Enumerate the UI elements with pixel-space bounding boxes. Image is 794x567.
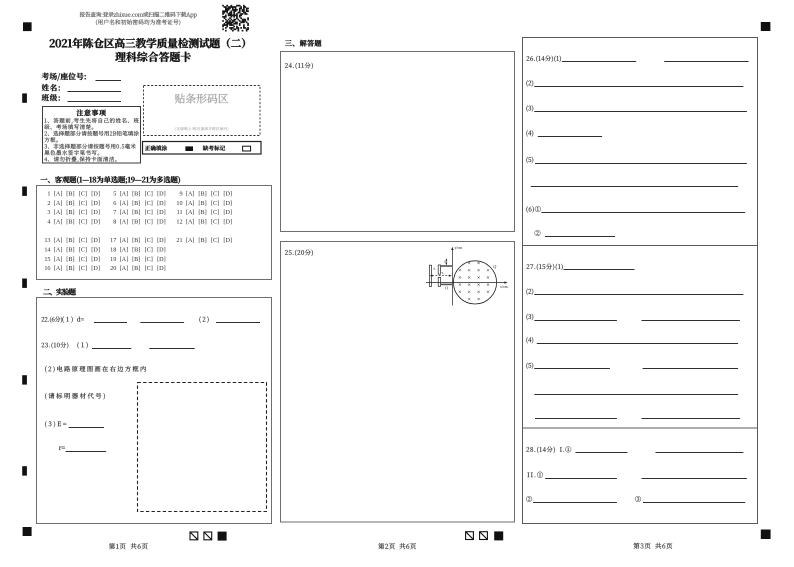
svg-text:[B]: [B] — [66, 191, 74, 198]
svg-text:[C]: [C] — [145, 256, 153, 263]
svg-text:[C]: [C] — [211, 191, 219, 198]
svg-text:d₂: d₂ — [444, 260, 447, 264]
svg-text:[B]: [B] — [66, 218, 74, 225]
svg-text:[D]: [D] — [223, 237, 232, 244]
svg-text:[C]: [C] — [145, 247, 153, 254]
svg-text:[D]: [D] — [157, 237, 166, 244]
svg-text:[D]: [D] — [223, 218, 232, 225]
svg-text:3: 3 — [47, 209, 50, 216]
svg-text:[B]: [B] — [132, 209, 140, 216]
svg-text:[A]: [A] — [186, 209, 195, 216]
svg-text:[D]: [D] — [91, 191, 100, 198]
svg-text:[B]: [B] — [132, 218, 140, 225]
svg-text:[D]: [D] — [91, 256, 100, 263]
svg-text:[A]: [A] — [54, 237, 63, 244]
svg-text:[A]: [A] — [54, 209, 63, 216]
svg-text:[C]: [C] — [79, 191, 87, 198]
svg-text:15: 15 — [44, 256, 50, 263]
svg-text:Q: Q — [493, 264, 496, 269]
svg-text:[B]: [B] — [198, 200, 206, 207]
svg-text:[B]: [B] — [66, 265, 74, 272]
svg-text:[B]: [B] — [132, 200, 140, 207]
svg-text:[D]: [D] — [157, 256, 166, 263]
svg-text:[A]: [A] — [54, 200, 63, 207]
svg-text:17: 17 — [110, 237, 116, 244]
svg-text:[B]: [B] — [198, 191, 206, 198]
svg-text:[B]: [B] — [66, 209, 74, 216]
svg-text:[C]: [C] — [79, 218, 87, 225]
svg-text:[D]: [D] — [91, 200, 100, 207]
svg-text:[C]: [C] — [145, 209, 153, 216]
svg-text:10: 10 — [176, 200, 182, 207]
svg-text:16: 16 — [44, 265, 50, 272]
svg-text:[C]: [C] — [211, 237, 219, 244]
svg-text:[B]: [B] — [198, 209, 206, 216]
svg-text:[D]: [D] — [223, 191, 232, 198]
svg-text:[B]: [B] — [198, 218, 206, 225]
svg-text:[C]: [C] — [79, 200, 87, 207]
svg-text:[A]: [A] — [186, 237, 195, 244]
svg-text:[D]: [D] — [223, 200, 232, 207]
svg-text:[C]: [C] — [79, 256, 87, 263]
svg-text:[D]: [D] — [157, 209, 166, 216]
svg-text:[C]: [C] — [145, 191, 153, 198]
svg-text:7: 7 — [113, 209, 116, 216]
svg-text:5: 5 — [113, 191, 116, 198]
svg-text:[A]: [A] — [120, 218, 129, 225]
svg-text:[D]: [D] — [91, 218, 100, 225]
svg-text:[A]: [A] — [54, 256, 63, 263]
svg-text:[A]: [A] — [120, 247, 129, 254]
svg-text:[A]: [A] — [54, 265, 63, 272]
svg-text:[C]: [C] — [145, 200, 153, 207]
svg-text:[D]: [D] — [157, 200, 166, 207]
svg-text:[D]: [D] — [157, 247, 166, 254]
svg-text:13: 13 — [44, 237, 50, 244]
svg-text:9: 9 — [180, 191, 183, 198]
svg-text:21: 21 — [176, 237, 182, 244]
svg-text:y/cm: y/cm — [455, 246, 463, 250]
svg-text:11: 11 — [177, 209, 183, 216]
svg-text:[A]: [A] — [120, 191, 129, 198]
svg-text:[C]: [C] — [79, 247, 87, 254]
svg-text:[A]: [A] — [54, 247, 63, 254]
svg-text:[D]: [D] — [157, 265, 166, 272]
svg-text:[C]: [C] — [145, 218, 153, 225]
svg-text:O: O — [445, 285, 448, 290]
svg-text:d₁: d₁ — [433, 267, 436, 271]
svg-text:x/cm: x/cm — [500, 285, 508, 289]
svg-text:19: 19 — [110, 256, 116, 263]
svg-text:12: 12 — [176, 218, 182, 225]
svg-text:[C]: [C] — [79, 209, 87, 216]
svg-text:1: 1 — [47, 191, 50, 198]
svg-text:[C]: [C] — [79, 265, 87, 272]
svg-text:[B]: [B] — [132, 265, 140, 272]
svg-text:18: 18 — [110, 247, 116, 254]
svg-text:[B]: [B] — [132, 247, 140, 254]
svg-text:[C]: [C] — [211, 218, 219, 225]
svg-text:14: 14 — [44, 247, 50, 254]
svg-text:[D]: [D] — [91, 237, 100, 244]
svg-text:[D]: [D] — [91, 265, 100, 272]
svg-text:[D]: [D] — [91, 247, 100, 254]
svg-text:[B]: [B] — [198, 237, 206, 244]
svg-text:[C]: [C] — [211, 209, 219, 216]
svg-text:[C]: [C] — [145, 237, 153, 244]
svg-text:[B]: [B] — [132, 256, 140, 263]
svg-text:[A]: [A] — [186, 191, 195, 198]
svg-text:8: 8 — [113, 218, 116, 225]
svg-text:[C]: [C] — [145, 265, 153, 272]
svg-text:[D]: [D] — [91, 209, 100, 216]
svg-text:[D]: [D] — [157, 191, 166, 198]
svg-text:[A]: [A] — [120, 200, 129, 207]
svg-text:[A]: [A] — [120, 265, 129, 272]
svg-text:2: 2 — [47, 200, 50, 207]
svg-text:[B]: [B] — [66, 247, 74, 254]
svg-text:[A]: [A] — [186, 200, 195, 207]
svg-text:[A]: [A] — [54, 218, 63, 225]
svg-text:[B]: [B] — [66, 237, 74, 244]
svg-text:[C]: [C] — [211, 200, 219, 207]
svg-text:[A]: [A] — [54, 191, 63, 198]
svg-text:[B]: [B] — [66, 256, 74, 263]
svg-text:[D]: [D] — [223, 209, 232, 216]
svg-text:[A]: [A] — [186, 218, 195, 225]
svg-text:6: 6 — [113, 200, 116, 207]
svg-text:[A]: [A] — [120, 209, 129, 216]
svg-text:[A]: [A] — [120, 237, 129, 244]
svg-text:[D]: [D] — [157, 218, 166, 225]
svg-text:[B]: [B] — [132, 191, 140, 198]
svg-text:4: 4 — [47, 218, 50, 225]
svg-text:[C]: [C] — [79, 237, 87, 244]
svg-text:20: 20 — [110, 265, 116, 272]
svg-text:[B]: [B] — [132, 237, 140, 244]
svg-text:[B]: [B] — [66, 200, 74, 207]
svg-text:[A]: [A] — [120, 256, 129, 263]
